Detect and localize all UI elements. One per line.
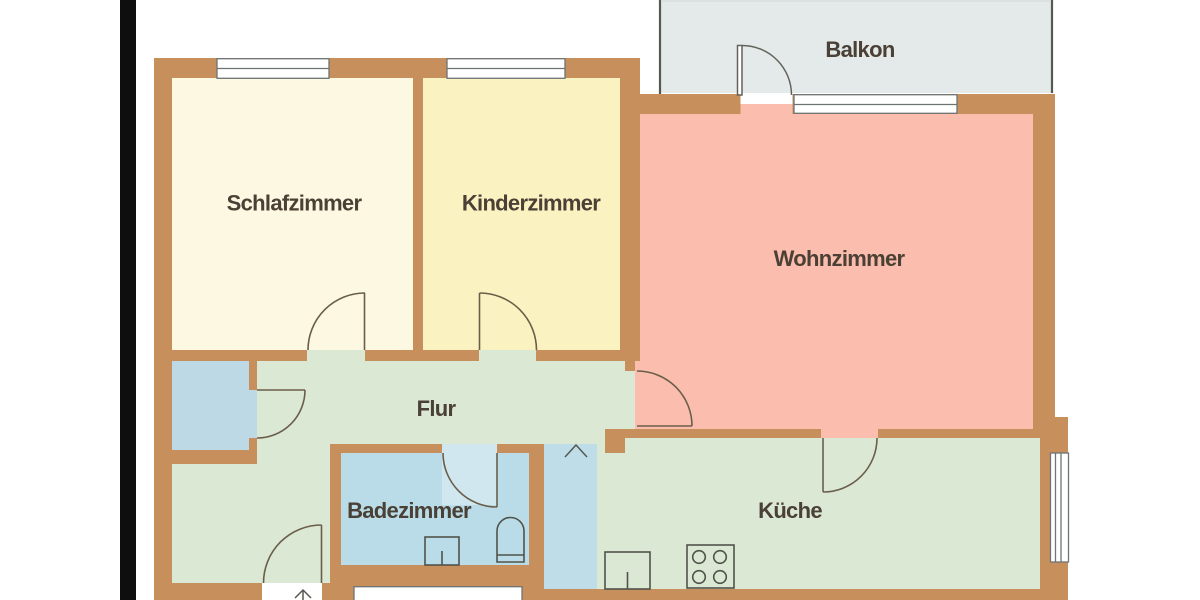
svg-text:Balkon: Balkon (825, 37, 894, 62)
svg-text:Flur: Flur (417, 396, 457, 421)
svg-text:Wohnzimmer: Wohnzimmer (774, 246, 906, 271)
svg-text:Schlafzimmer: Schlafzimmer (227, 191, 363, 216)
svg-text:Badezimmer: Badezimmer (347, 498, 472, 523)
svg-text:Küche: Küche (758, 498, 822, 523)
svg-text:Kinderzimmer: Kinderzimmer (462, 191, 601, 216)
